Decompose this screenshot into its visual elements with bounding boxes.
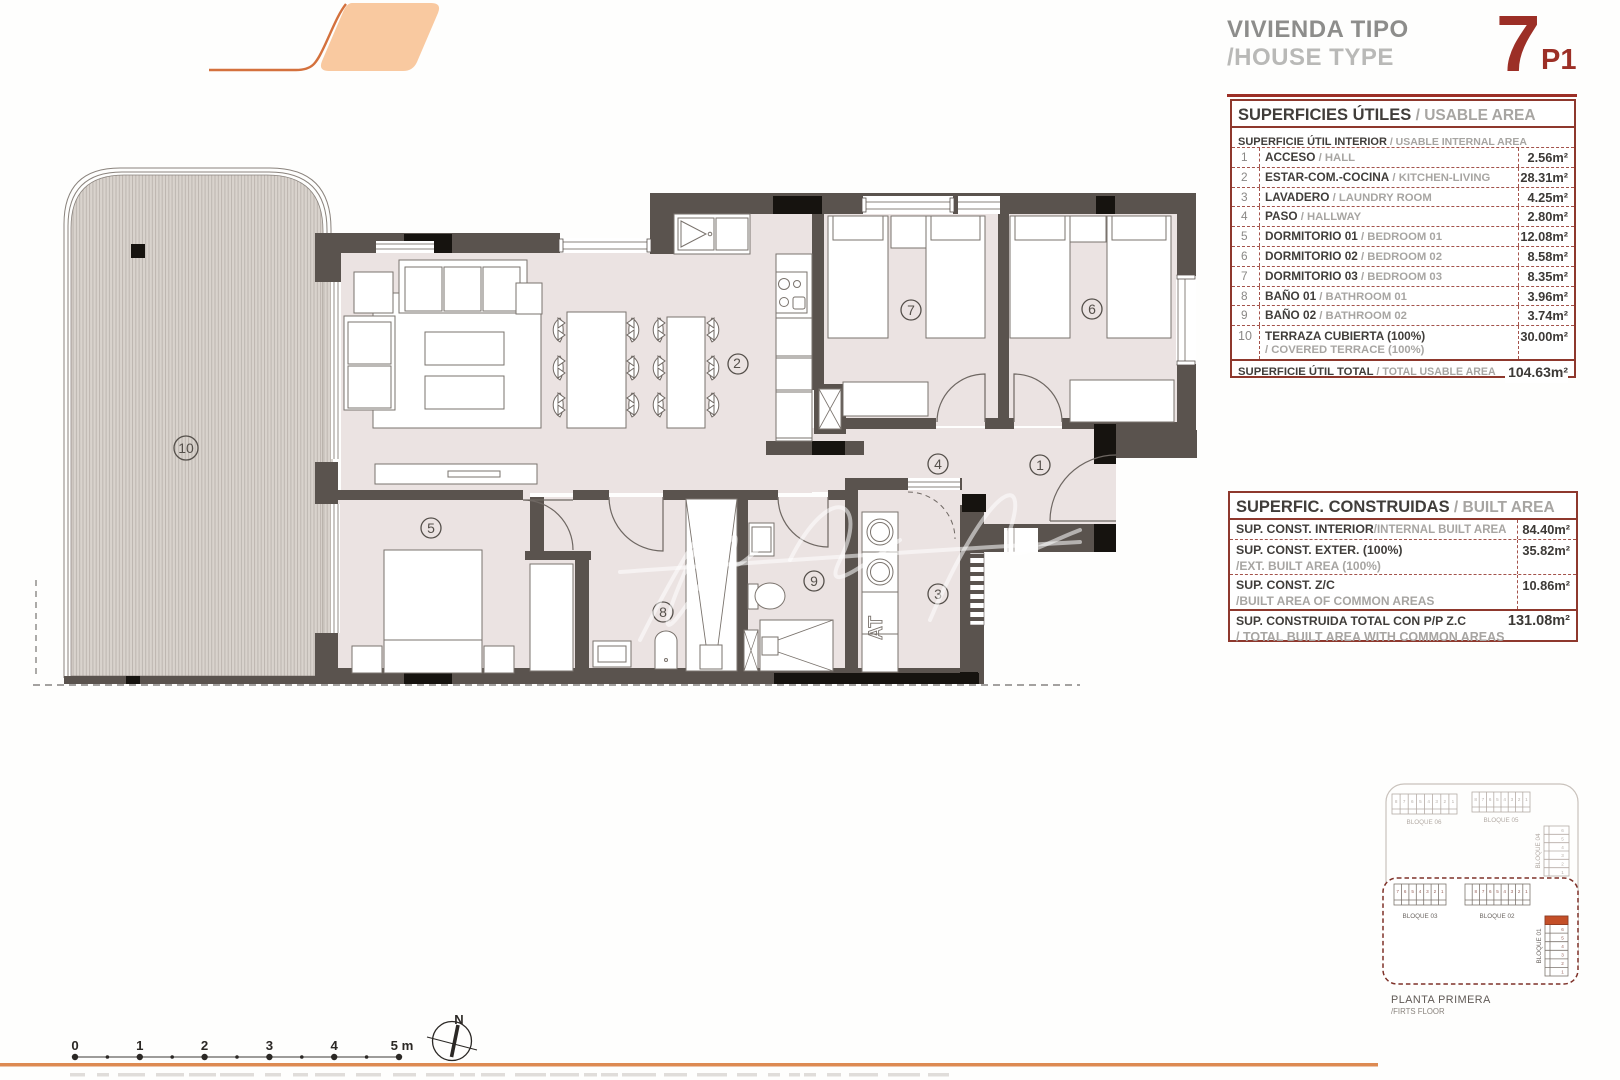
svg-text:3: 3 [1561, 853, 1564, 858]
svg-text:8: 8 [1474, 797, 1477, 802]
svg-text:1: 1 [1525, 889, 1528, 894]
svg-text:3: 3 [1435, 799, 1438, 804]
svg-text:5: 5 [1411, 889, 1414, 894]
svg-text:1: 1 [1441, 889, 1444, 894]
svg-text:4: 4 [934, 456, 942, 472]
svg-text:9: 9 [810, 573, 818, 589]
svg-text:BLOQUE 01: BLOQUE 01 [1536, 928, 1543, 963]
svg-text:8: 8 [1395, 799, 1398, 804]
svg-text:5: 5 [1496, 889, 1499, 894]
svg-text:6: 6 [1411, 799, 1414, 804]
svg-text:1: 1 [1561, 870, 1564, 875]
svg-text:3: 3 [1561, 953, 1564, 958]
svg-text:8: 8 [1475, 889, 1478, 894]
svg-text:5: 5 [1561, 837, 1564, 842]
svg-text:6: 6 [1088, 301, 1096, 317]
svg-text:AT: AT [866, 616, 887, 640]
svg-text:2: 2 [733, 355, 741, 371]
svg-text:0: 0 [71, 1038, 78, 1053]
svg-text:BLOQUE 05: BLOQUE 05 [1484, 817, 1519, 824]
svg-text:2: 2 [201, 1038, 208, 1053]
svg-text:1: 1 [136, 1038, 143, 1053]
svg-text:/FIRTS FLOOR: /FIRTS FLOOR [1391, 1007, 1445, 1016]
svg-text:2: 2 [1444, 799, 1447, 804]
svg-text:7: 7 [1403, 799, 1406, 804]
svg-text:N: N [454, 1012, 463, 1027]
svg-text:BLOQUE 03: BLOQUE 03 [1403, 913, 1438, 920]
svg-text:7: 7 [1482, 889, 1485, 894]
svg-text:3: 3 [1426, 889, 1429, 894]
svg-text:1: 1 [1452, 799, 1455, 804]
svg-text:3: 3 [266, 1038, 273, 1053]
svg-text:4: 4 [1561, 845, 1564, 850]
svg-text:3: 3 [1511, 797, 1514, 802]
svg-text:6: 6 [1404, 889, 1407, 894]
svg-text:6: 6 [1489, 889, 1492, 894]
svg-text:4: 4 [1503, 889, 1506, 894]
svg-text:7: 7 [1482, 797, 1485, 802]
svg-text:PLANTA PRIMERA: PLANTA PRIMERA [1391, 994, 1491, 1006]
svg-text:5: 5 [427, 520, 435, 536]
svg-text:2: 2 [1518, 797, 1521, 802]
svg-text:1: 1 [1561, 970, 1564, 975]
svg-text:2: 2 [1561, 961, 1564, 966]
svg-text:6: 6 [1561, 927, 1564, 932]
svg-text:4: 4 [331, 1038, 339, 1053]
svg-text:7: 7 [1396, 889, 1399, 894]
svg-text:5: 5 [1561, 935, 1564, 940]
svg-text:2: 2 [1518, 889, 1521, 894]
svg-text:4: 4 [1503, 797, 1506, 802]
svg-text:4: 4 [1561, 944, 1564, 949]
svg-text:4: 4 [1427, 799, 1430, 804]
svg-text:3: 3 [1511, 889, 1514, 894]
svg-text:6: 6 [1561, 828, 1564, 833]
svg-text:5: 5 [1496, 797, 1499, 802]
svg-text:BLOQUE 04: BLOQUE 04 [1535, 833, 1542, 868]
svg-text:1: 1 [1525, 797, 1528, 802]
svg-text:2: 2 [1561, 862, 1564, 867]
svg-text:7: 7 [907, 302, 915, 318]
svg-text:1: 1 [1036, 457, 1044, 473]
svg-text:10: 10 [178, 440, 194, 456]
svg-text:5: 5 [1419, 799, 1422, 804]
svg-text:2: 2 [1434, 889, 1437, 894]
svg-text:BLOQUE 02: BLOQUE 02 [1480, 913, 1515, 920]
svg-text:5 m: 5 m [391, 1038, 414, 1053]
svg-text:6: 6 [1489, 797, 1492, 802]
svg-text:4: 4 [1419, 889, 1422, 894]
svg-text:BLOQUE 06: BLOQUE 06 [1407, 819, 1442, 826]
